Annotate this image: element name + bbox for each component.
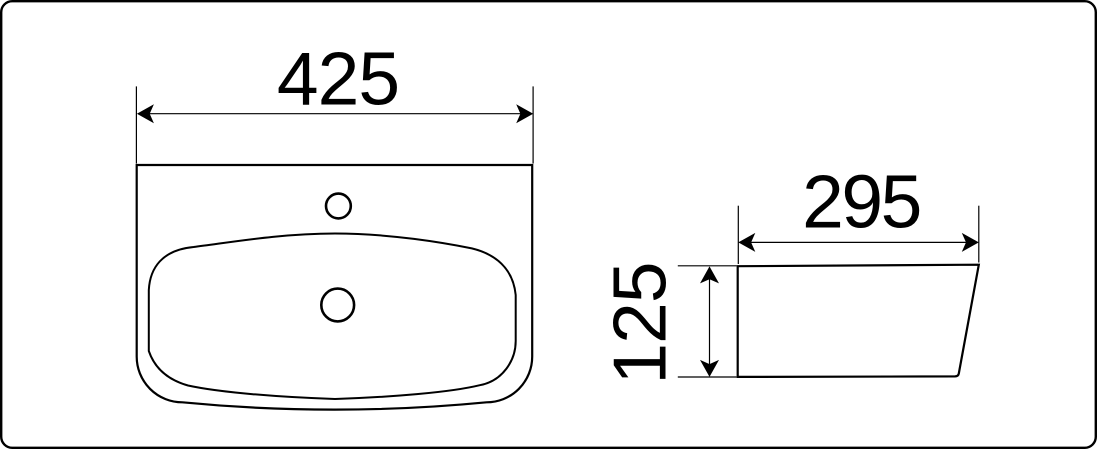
svg-text:295: 295 bbox=[802, 160, 920, 244]
svg-text:125: 125 bbox=[598, 262, 682, 384]
svg-text:425: 425 bbox=[277, 36, 399, 120]
